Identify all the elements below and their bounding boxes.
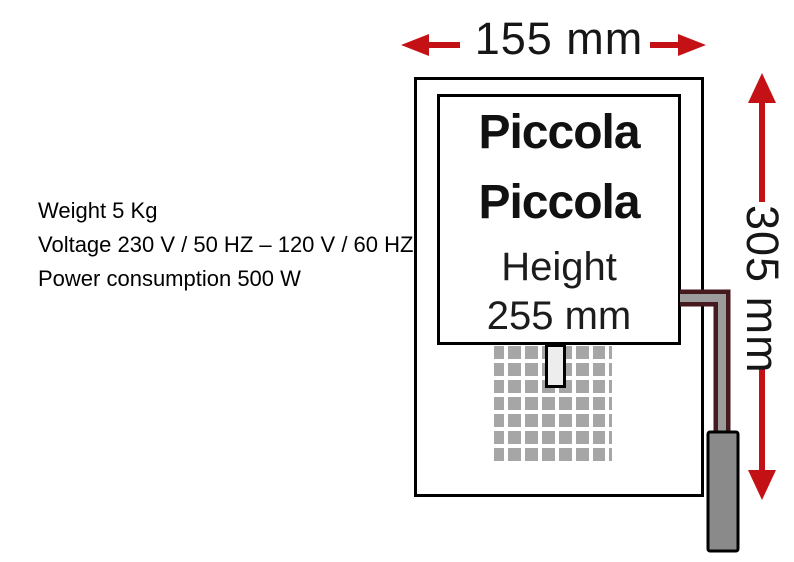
- height-dimension-label: 305 mm: [739, 205, 785, 365]
- spec-weight: Weight 5 Kg: [38, 194, 413, 228]
- spec-text-block: Weight 5 Kg Voltage 230 V / 50 HZ – 120 …: [38, 194, 413, 296]
- label-plate: Piccola Piccola Height 255 mm: [437, 94, 681, 345]
- power-plug: [708, 432, 738, 551]
- height-arrow-up: [748, 73, 776, 202]
- brand-name-line1: Piccola: [440, 102, 678, 164]
- height-caption-word: Height: [440, 241, 678, 293]
- spec-voltage: Voltage 230 V / 50 HZ – 120 V / 60 HZ: [38, 228, 413, 262]
- height-caption-value: 255 mm: [440, 293, 678, 339]
- spec-power: Power consumption 500 W: [38, 262, 413, 296]
- dispensing-spout: [545, 344, 566, 388]
- brand-name-line2: Piccola: [440, 172, 678, 234]
- height-arrow-down: [748, 367, 776, 500]
- width-dimension-label: 155 mm: [414, 15, 704, 63]
- spec-diagram: Weight 5 Kg Voltage 230 V / 50 HZ – 120 …: [0, 0, 794, 562]
- height-arrowhead-down-icon: [748, 470, 776, 500]
- height-arrowhead-up-icon: [748, 73, 776, 103]
